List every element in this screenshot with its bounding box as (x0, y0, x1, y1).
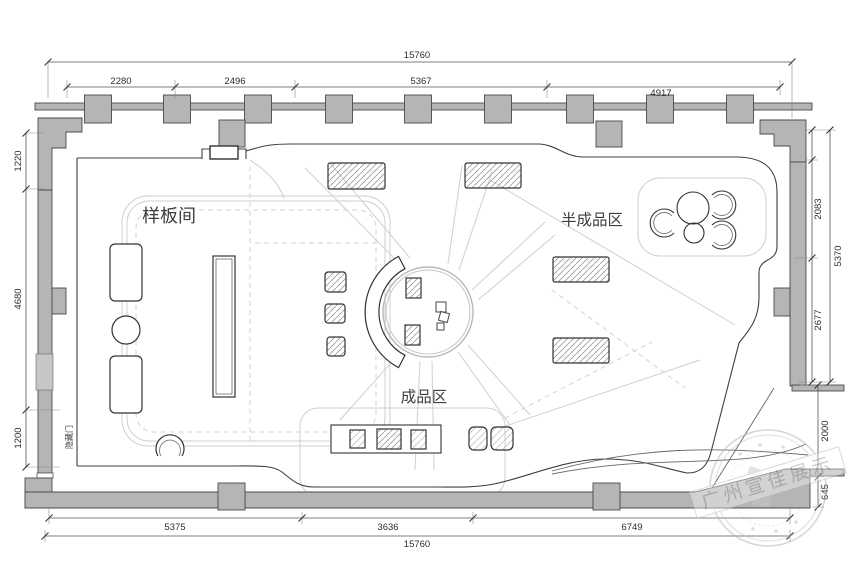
display-cube (377, 429, 401, 449)
chair (654, 213, 672, 234)
display-table (405, 325, 420, 345)
right-corner-block (760, 120, 806, 162)
dim-bottom-2: 3636 (377, 522, 398, 533)
interior-column-door (219, 120, 245, 147)
right-wall (790, 162, 806, 386)
display-table (553, 257, 609, 282)
left-wall-cap (37, 473, 53, 478)
display-table (465, 163, 521, 188)
hidden-door-frame (210, 146, 238, 159)
dim-bottom-3: 6749 (621, 522, 642, 533)
furniture (110, 163, 736, 456)
left-wall (38, 190, 52, 473)
dim-top-overall: 15760 (404, 50, 430, 61)
stool (491, 427, 513, 450)
display-cube (325, 272, 346, 292)
bottom-column-left (218, 483, 245, 510)
sample-round-table (112, 316, 140, 344)
dim-bottom-overall: 15760 (404, 539, 430, 550)
display-table (553, 338, 609, 363)
dim-left-2: 4680 (13, 288, 24, 309)
small-stand (436, 302, 446, 312)
small-stand (437, 323, 444, 330)
small-stand (438, 311, 449, 322)
dimension-ticks (23, 59, 834, 540)
stool (469, 427, 487, 450)
label-finished-zone: 成品区 (401, 388, 448, 406)
dim-right-overall: 5370 (833, 245, 844, 266)
dim-top-1: 2280 (110, 76, 131, 87)
dim-top-4: 4917 (650, 88, 671, 99)
dim-left-3: 1200 (13, 427, 24, 448)
dim-right-1: 2083 (813, 198, 824, 219)
right-wall-protrusion (774, 288, 790, 316)
chair (156, 435, 184, 456)
interior-column-mid (596, 121, 622, 147)
chair (714, 195, 732, 216)
left-wall-window (36, 354, 53, 390)
sample-table (110, 356, 142, 413)
round-table (677, 192, 709, 224)
label-hidden-door: 隐藏门 (64, 425, 74, 449)
dim-top-3: 5367 (410, 76, 431, 87)
dim-right-2: 2677 (813, 309, 824, 330)
chair (714, 225, 732, 246)
display-cube (327, 337, 345, 356)
display-cube (411, 430, 426, 449)
dim-bottom-1: 5375 (164, 522, 185, 533)
floor-plan-canvas: 15760 2280 2496 5367 4917 1220 4680 1200… (0, 0, 850, 568)
round-table (684, 223, 704, 243)
bottom-column-right (593, 483, 620, 510)
left-wall-protrusion (52, 288, 66, 314)
dim-left-1: 1220 (13, 150, 24, 171)
label-semi-finished-zone: 半成品区 (561, 211, 623, 229)
floor-plan-drawing: 15760 2280 2496 5367 4917 1220 4680 1200… (0, 0, 850, 568)
dim-top-2: 2496 (224, 76, 245, 87)
area-labels: 样板间 半成品区 成品区 隐藏门 (64, 206, 623, 449)
display-cube (325, 304, 345, 323)
left-corner-block (38, 118, 82, 190)
dim-right-3: 2000 (820, 420, 831, 441)
label-sample-room: 样板间 (142, 206, 196, 226)
display-table (328, 163, 385, 189)
top-columns (85, 95, 754, 123)
sample-table (110, 244, 142, 301)
central-display (365, 256, 473, 367)
display-table (406, 278, 421, 298)
display-cube (350, 430, 365, 448)
